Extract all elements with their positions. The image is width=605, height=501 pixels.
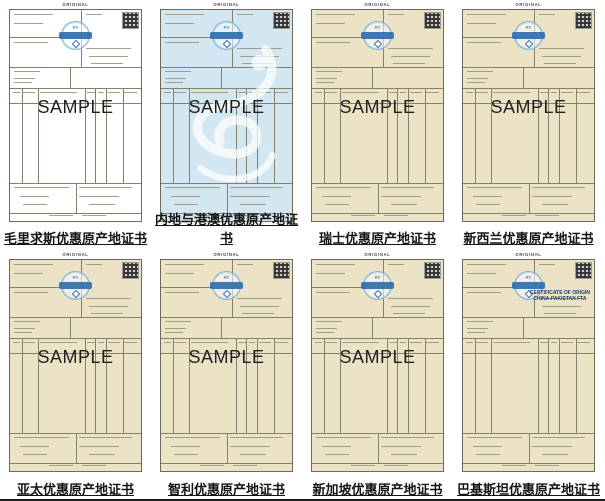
form-text-line xyxy=(13,342,21,343)
form-line xyxy=(529,183,530,213)
cert-cell-asia-pacific: ORIGINALKCSAMPLE 亚太优惠原产地证书 xyxy=(0,250,151,501)
form-text-line xyxy=(542,204,568,205)
cert-caption-pakistan[interactable]: 巴基斯坦优惠原产地证书 xyxy=(453,479,604,498)
form-line xyxy=(10,67,141,68)
form-text-line xyxy=(388,298,433,299)
form-text-line xyxy=(467,23,496,24)
form-text-line xyxy=(165,321,191,322)
form-line xyxy=(378,183,379,213)
form-text-line xyxy=(14,292,48,293)
form-text-line xyxy=(544,63,575,64)
sample-watermark: SAMPLE xyxy=(161,97,292,118)
form-text-line xyxy=(467,14,506,15)
ccpit-seal-icon: KC xyxy=(212,21,241,50)
form-text-line xyxy=(325,454,349,455)
cert-caption-new-zealand[interactable]: 新西兰优惠原产地证书 xyxy=(453,228,604,247)
cert-cell-chile: ORIGINALKCSAMPLE 智利优惠原产地证书 xyxy=(151,250,302,501)
original-label: ORIGINAL xyxy=(180,253,273,258)
form-text-line xyxy=(351,215,375,216)
form-text-line xyxy=(98,92,105,93)
form-line xyxy=(463,338,594,339)
form-text-line xyxy=(400,92,407,93)
form-text-line xyxy=(238,342,246,343)
form-text-line xyxy=(237,298,282,299)
cert-thumbnail-mauritius[interactable]: ORIGINALKCSAMPLE xyxy=(9,2,142,224)
qr-code-icon xyxy=(576,13,591,28)
form-text-line xyxy=(535,465,559,466)
form-text-line xyxy=(316,292,350,293)
form-text-line xyxy=(342,342,379,343)
qr-code-icon xyxy=(425,13,440,28)
form-line xyxy=(463,317,594,318)
cert-thumbnail-asia-pacific[interactable]: ORIGINALKCSAMPLE xyxy=(9,252,142,474)
form-text-line xyxy=(467,273,496,274)
form-text-line xyxy=(325,204,349,205)
cert-caption-chile[interactable]: 智利优惠原产地证书 xyxy=(151,479,302,498)
form-text-line xyxy=(467,332,485,333)
form-text-line xyxy=(467,78,488,79)
form-text-line xyxy=(467,42,501,43)
form-text-line xyxy=(540,92,548,93)
seal-band xyxy=(512,32,545,39)
form-line xyxy=(161,463,292,464)
form-text-line xyxy=(577,92,590,93)
ccpit-seal-icon: KC xyxy=(363,21,392,50)
ccpit-seal-icon: KC xyxy=(212,271,241,300)
form-text-line xyxy=(230,446,269,447)
form-text-line xyxy=(14,187,69,188)
original-label: ORIGINAL xyxy=(331,253,424,258)
seal-logo: KC xyxy=(218,276,236,280)
form-text-line xyxy=(467,71,493,72)
form-text-line xyxy=(493,92,530,93)
form-line xyxy=(312,213,443,214)
form-text-line xyxy=(325,92,337,93)
cert-cell-mauritius: ORIGINALKCSAMPLE 毛里求斯优惠原产地证书 xyxy=(0,0,151,250)
form-text-line xyxy=(79,446,118,447)
cert-thumbnail-pakistan[interactable]: ORIGINALKCCERTIFICATE OF ORIGINCHINA-PAK… xyxy=(462,252,595,474)
certificate-sheet: KCSAMPLE xyxy=(160,9,293,222)
form-text-line xyxy=(171,446,200,447)
form-text-line xyxy=(86,298,131,299)
form-text-line xyxy=(14,264,53,265)
cert-cell-pakistan: ORIGINALKCCERTIFICATE OF ORIGINCHINA-PAK… xyxy=(453,250,604,501)
seal-logo: KC xyxy=(218,26,236,30)
cert-caption-mauritius[interactable]: 毛里求斯优惠原产地证书 xyxy=(0,228,151,247)
form-text-line xyxy=(174,342,186,343)
form-text-line xyxy=(473,196,502,197)
form-line xyxy=(378,433,379,463)
form-text-line xyxy=(14,273,43,274)
form-text-line xyxy=(86,264,102,265)
form-line xyxy=(70,67,71,88)
form-text-line xyxy=(23,92,35,93)
sample-watermark: SAMPLE xyxy=(312,97,443,118)
form-text-line xyxy=(89,454,115,455)
form-text-line xyxy=(391,56,430,57)
cert-cell-switzerland: ORIGINALKCSAMPLE 瑞士优惠原产地证书 xyxy=(302,0,453,250)
cert-caption-singapore[interactable]: 新加坡优惠原产地证书 xyxy=(302,479,453,498)
form-text-line xyxy=(49,215,73,216)
form-text-line xyxy=(388,48,433,49)
form-line xyxy=(538,338,539,433)
form-text-line xyxy=(164,342,172,343)
form-line xyxy=(10,88,141,89)
form-text-line xyxy=(233,465,257,466)
ccpit-seal-icon: KC xyxy=(61,271,90,300)
certificate-sheet: KCSAMPLE xyxy=(9,259,142,472)
form-text-line xyxy=(174,454,198,455)
form-line xyxy=(523,67,524,88)
form-text-line xyxy=(467,82,485,83)
form-line xyxy=(463,88,594,89)
cert-thumbnail-singapore[interactable]: ORIGINALKCSAMPLE xyxy=(311,252,444,474)
form-text-line xyxy=(502,465,526,466)
form-text-line xyxy=(316,273,345,274)
seal-band xyxy=(512,282,545,289)
certificate-sheet: KCSAMPLE xyxy=(311,9,444,222)
original-label: ORIGINAL xyxy=(29,253,122,258)
form-text-line xyxy=(79,196,118,197)
original-label: ORIGINAL xyxy=(482,253,575,258)
form-line xyxy=(76,183,77,213)
form-text-line xyxy=(342,92,379,93)
form-line xyxy=(463,67,594,68)
original-label: ORIGINAL xyxy=(331,3,424,8)
form-line xyxy=(227,433,228,463)
form-text-line xyxy=(40,92,77,93)
form-line xyxy=(523,317,524,338)
form-text-line xyxy=(393,313,424,314)
form-line xyxy=(312,338,443,339)
form-text-line xyxy=(539,48,584,49)
form-text-line xyxy=(322,196,351,197)
form-text-line xyxy=(86,48,131,49)
form-text-line xyxy=(391,306,430,307)
form-text-line xyxy=(40,342,77,343)
cert-thumbnail-mainland-hk-macau[interactable]: ORIGINALKCSAMPLE xyxy=(160,2,293,224)
seal-logo: KC xyxy=(520,26,538,30)
original-label: ORIGINAL xyxy=(482,3,575,8)
form-line xyxy=(463,463,594,464)
form-text-line xyxy=(551,92,558,93)
seal-logo: KC xyxy=(67,26,85,30)
form-text-line xyxy=(191,342,228,343)
form-text-line xyxy=(14,71,40,72)
form-text-line xyxy=(467,437,522,438)
form-text-line xyxy=(108,92,120,93)
qr-code-icon xyxy=(123,263,138,278)
form-text-line xyxy=(322,446,351,447)
form-line xyxy=(559,338,560,433)
form-text-line xyxy=(381,187,433,188)
seal-logo: KC xyxy=(67,276,85,280)
form-text-line xyxy=(14,82,32,83)
form-text-line xyxy=(87,92,95,93)
form-text-line xyxy=(14,332,32,333)
seal-band xyxy=(361,282,394,289)
ccpit-seal-icon: KC xyxy=(363,271,392,300)
form-text-line xyxy=(561,92,573,93)
form-text-line xyxy=(384,215,408,216)
form-text-line xyxy=(82,465,106,466)
form-text-line xyxy=(315,342,323,343)
form-text-line xyxy=(316,23,345,24)
seal-band xyxy=(210,32,243,39)
form-text-line xyxy=(89,306,128,307)
sample-watermark: SAMPLE xyxy=(312,347,443,368)
certificate-sheet: KCSAMPLE xyxy=(160,259,293,472)
form-text-line xyxy=(237,264,253,265)
form-line xyxy=(76,433,77,463)
form-line xyxy=(70,317,71,338)
form-text-line xyxy=(467,187,522,188)
form-text-line xyxy=(242,313,273,314)
form-text-line xyxy=(79,437,131,438)
form-text-line xyxy=(316,332,334,333)
qr-code-icon xyxy=(576,263,591,278)
form-line xyxy=(312,88,443,89)
form-text-line xyxy=(79,187,131,188)
form-line xyxy=(372,67,373,88)
form-text-line xyxy=(466,342,474,343)
form-text-line xyxy=(91,313,122,314)
form-text-line xyxy=(532,196,571,197)
seal-logo: KC xyxy=(520,276,538,280)
form-text-line xyxy=(400,342,407,343)
seal-diamond xyxy=(373,39,381,47)
form-text-line xyxy=(391,454,417,455)
form-text-line xyxy=(476,92,488,93)
form-line xyxy=(161,338,292,339)
cert-thumbnail-switzerland[interactable]: ORIGINALKCSAMPLE xyxy=(311,2,444,224)
form-text-line xyxy=(14,23,43,24)
form-text-line xyxy=(476,204,500,205)
form-text-line xyxy=(14,321,40,322)
seal-band xyxy=(210,282,243,289)
form-text-line xyxy=(240,306,279,307)
form-text-line xyxy=(388,264,404,265)
form-line xyxy=(463,213,594,214)
form-text-line xyxy=(165,292,199,293)
form-text-line xyxy=(539,264,555,265)
seal-diamond xyxy=(373,289,381,297)
form-text-line xyxy=(20,446,49,447)
form-line xyxy=(10,317,141,318)
seal-logo: KC xyxy=(369,26,387,30)
form-text-line xyxy=(124,342,137,343)
form-text-line xyxy=(87,342,95,343)
form-text-line xyxy=(20,196,49,197)
cert-caption-asia-pacific[interactable]: 亚太优惠原产地证书 xyxy=(0,479,151,498)
form-text-line xyxy=(316,82,334,83)
certificate-sheet: KCSAMPLE xyxy=(311,259,444,472)
form-text-line xyxy=(82,215,106,216)
form-text-line xyxy=(14,42,48,43)
form-text-line xyxy=(410,342,422,343)
form-text-line xyxy=(23,342,35,343)
form-text-line xyxy=(316,328,337,329)
form-text-line xyxy=(381,446,420,447)
form-text-line xyxy=(91,63,122,64)
certificate-gallery: ORIGINALKCSAMPLE 毛里求斯优惠原产地证书 ORIGINALKCS… xyxy=(0,0,605,501)
ccpit-seal-icon: KC xyxy=(514,21,543,50)
form-text-line xyxy=(23,204,47,205)
form-text-line xyxy=(473,446,502,447)
form-text-line xyxy=(391,204,417,205)
form-text-line xyxy=(467,264,506,265)
form-text-line xyxy=(476,454,500,455)
form-line xyxy=(529,433,530,463)
seal-logo: KC xyxy=(369,276,387,280)
form-text-line xyxy=(124,92,137,93)
certificate-title: CERTIFICATE OF ORIGINCHINA-PAKISTAN FTA xyxy=(529,290,592,302)
form-text-line xyxy=(98,342,105,343)
form-line xyxy=(161,317,292,318)
form-text-line xyxy=(108,342,120,343)
form-text-line xyxy=(49,465,73,466)
cert-thumbnail-chile[interactable]: ORIGINALKCSAMPLE xyxy=(160,252,293,474)
ccpit-seal-icon: KC xyxy=(61,21,90,50)
seal-diamond xyxy=(222,289,230,297)
seal-diamond xyxy=(71,289,79,297)
form-text-line xyxy=(315,92,323,93)
form-text-line xyxy=(249,342,256,343)
form-text-line xyxy=(426,342,439,343)
form-text-line xyxy=(351,465,375,466)
sample-watermark: SAMPLE xyxy=(10,97,141,118)
cert-caption-switzerland[interactable]: 瑞士优惠原产地证书 xyxy=(302,228,453,247)
form-line xyxy=(576,338,577,433)
form-text-line xyxy=(165,264,204,265)
form-text-line xyxy=(165,273,194,274)
form-text-line xyxy=(542,56,581,57)
form-line xyxy=(10,338,141,339)
form-text-line xyxy=(389,92,397,93)
form-text-line xyxy=(381,437,433,438)
qr-code-icon xyxy=(274,263,289,278)
form-text-line xyxy=(14,437,69,438)
form-text-line xyxy=(316,78,337,79)
seal-diamond xyxy=(222,39,230,47)
form-text-line xyxy=(381,196,420,197)
form-line xyxy=(221,317,222,338)
form-text-line xyxy=(14,328,35,329)
form-text-line xyxy=(388,14,404,15)
form-line xyxy=(491,338,492,433)
form-text-line xyxy=(13,92,21,93)
form-text-line xyxy=(240,454,266,455)
form-text-line xyxy=(316,264,355,265)
seal-band xyxy=(59,282,92,289)
form-text-line xyxy=(467,328,488,329)
form-text-line xyxy=(384,465,408,466)
form-text-line xyxy=(551,342,558,343)
form-text-line xyxy=(86,14,102,15)
form-text-line xyxy=(325,342,337,343)
form-text-line xyxy=(532,437,584,438)
form-text-line xyxy=(493,342,530,343)
certificate-sheet: KCCERTIFICATE OF ORIGINCHINA-PAKISTAN FT… xyxy=(462,259,595,472)
form-text-line xyxy=(467,321,493,322)
form-text-line xyxy=(165,437,220,438)
qr-code-icon xyxy=(274,13,289,28)
sample-watermark: SAMPLE xyxy=(161,347,292,368)
seal-diamond xyxy=(71,39,79,47)
certificate-sheet: KCSAMPLE xyxy=(9,9,142,222)
form-text-line xyxy=(393,63,424,64)
form-text-line xyxy=(561,342,573,343)
form-line xyxy=(475,338,476,433)
form-line xyxy=(10,213,141,214)
sample-watermark: SAMPLE xyxy=(10,347,141,368)
form-text-line xyxy=(165,328,186,329)
form-text-line xyxy=(316,14,355,15)
form-text-line xyxy=(275,342,288,343)
form-text-line xyxy=(467,292,501,293)
cert-thumbnail-new-zealand[interactable]: ORIGINALKCSAMPLE xyxy=(462,2,595,224)
form-line xyxy=(312,67,443,68)
original-label: ORIGINAL xyxy=(180,3,273,8)
certificate-sheet: KCSAMPLE xyxy=(462,9,595,222)
form-line xyxy=(312,463,443,464)
qr-code-icon xyxy=(425,263,440,278)
seal-diamond xyxy=(524,39,532,47)
form-text-line xyxy=(542,306,581,307)
form-text-line xyxy=(316,42,350,43)
form-text-line xyxy=(535,215,559,216)
form-line xyxy=(312,317,443,318)
form-text-line xyxy=(577,342,590,343)
cert-cell-new-zealand: ORIGINALKCSAMPLE 新西兰优惠原产地证书 xyxy=(453,0,604,250)
form-text-line xyxy=(539,14,555,15)
form-text-line xyxy=(89,56,128,57)
form-text-line xyxy=(540,342,548,343)
form-text-line xyxy=(165,332,183,333)
form-text-line xyxy=(426,92,439,93)
cert-cell-mainland-hk-macau: ORIGINALKCSAMPLE 内地与港澳优惠原产地证书 xyxy=(151,0,302,250)
form-text-line xyxy=(389,342,397,343)
form-text-line xyxy=(476,342,488,343)
form-text-line xyxy=(230,437,282,438)
seal-band xyxy=(361,32,394,39)
form-text-line xyxy=(502,215,526,216)
form-text-line xyxy=(316,437,371,438)
form-text-line xyxy=(542,454,568,455)
sample-watermark: SAMPLE xyxy=(463,97,594,118)
qr-code-icon xyxy=(123,13,138,28)
form-text-line xyxy=(14,78,35,79)
original-label: ORIGINAL xyxy=(29,3,122,8)
form-text-line xyxy=(532,446,571,447)
form-text-line xyxy=(544,313,575,314)
form-text-line xyxy=(200,465,224,466)
form-text-line xyxy=(23,454,47,455)
form-line xyxy=(548,338,549,433)
form-text-line xyxy=(14,14,53,15)
form-line xyxy=(10,463,141,464)
form-text-line xyxy=(316,321,342,322)
form-text-line xyxy=(466,92,474,93)
form-text-line xyxy=(316,187,371,188)
form-text-line xyxy=(89,204,115,205)
form-line xyxy=(463,353,594,354)
form-text-line xyxy=(259,342,271,343)
form-text-line xyxy=(410,92,422,93)
form-line xyxy=(372,317,373,338)
form-text-line xyxy=(316,71,342,72)
seal-band xyxy=(59,32,92,39)
